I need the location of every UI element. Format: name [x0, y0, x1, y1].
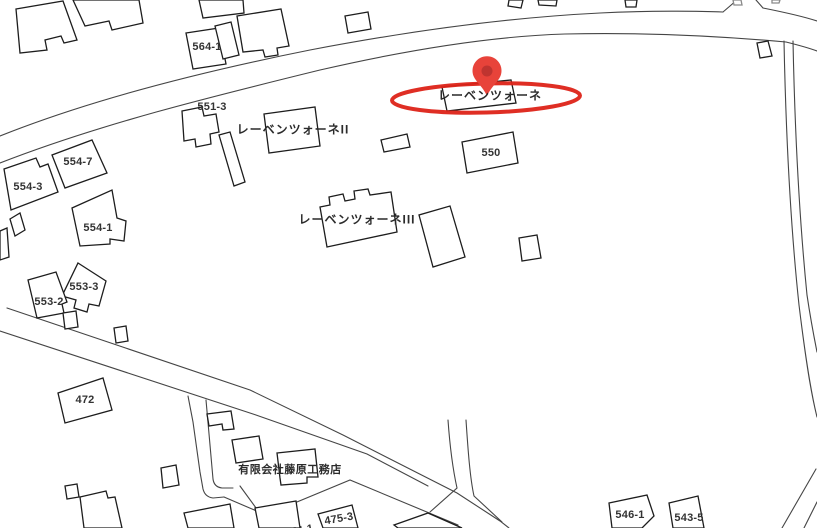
road-corner-edge1: [782, 469, 816, 528]
building: [419, 206, 465, 267]
building-company: [277, 449, 318, 485]
building-553-2: [28, 272, 67, 318]
road-west-vertical-left: [188, 396, 224, 498]
building: [232, 436, 263, 463]
building: [508, 0, 523, 8]
building-543-5: [669, 496, 704, 528]
building: [381, 134, 410, 152]
building: [772, 0, 780, 3]
building: [80, 491, 122, 528]
building-474-1: [255, 501, 300, 528]
road-south-left: [430, 420, 457, 512]
building-472: [58, 378, 112, 423]
building: [237, 9, 289, 57]
building: [519, 235, 541, 261]
building-546-1: [609, 495, 654, 528]
road-top-right-lower: [786, 42, 817, 51]
building: [10, 213, 25, 236]
building: [625, 0, 637, 7]
map-canvas[interactable]: 564-1 551-3 554-7 554-3 554-1 553-3 553-…: [0, 0, 817, 528]
building: [733, 0, 742, 5]
building-475-3: [318, 505, 358, 528]
building-footprints: [0, 0, 780, 528]
building-554-7: [52, 140, 107, 188]
map-graphics: [0, 0, 817, 528]
roads: [0, 0, 817, 528]
building: [538, 0, 557, 6]
building-residence2: [264, 107, 320, 153]
road-south-right: [466, 420, 502, 522]
building: [345, 12, 371, 33]
building: [161, 465, 179, 488]
building: [219, 132, 245, 186]
building-550: [462, 132, 518, 173]
building: [184, 504, 234, 528]
building: [394, 513, 462, 528]
building: [757, 41, 772, 58]
road-east-left-edge: [784, 41, 817, 417]
building-554-3: [4, 158, 58, 210]
building-554-1: [72, 190, 126, 246]
building: [16, 1, 77, 53]
building: [207, 411, 234, 430]
building-551-3: [182, 107, 219, 147]
road-top-right-upper: [763, 8, 817, 21]
road-top-branch-right: [756, 0, 763, 8]
building: [199, 0, 244, 18]
building: [65, 484, 79, 499]
building: [73, 0, 143, 30]
road-east-right-edge: [793, 41, 817, 352]
building-553-3: [62, 263, 106, 312]
building: [0, 228, 9, 260]
building: [63, 311, 78, 329]
building-residence3: [320, 189, 397, 247]
building: [114, 326, 128, 343]
road-corner-edge2: [804, 502, 817, 528]
